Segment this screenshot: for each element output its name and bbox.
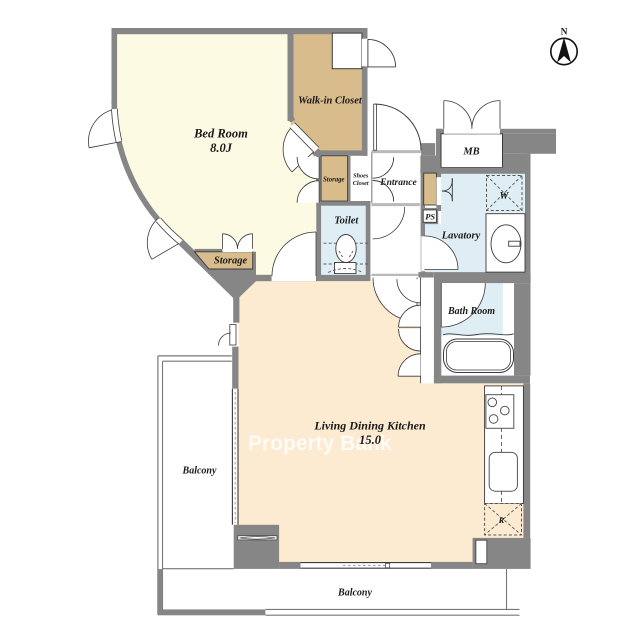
svg-text:Lavatory: Lavatory	[441, 231, 481, 242]
svg-text:Walk-in Closet: Walk-in Closet	[298, 96, 363, 107]
svg-text:Toilet: Toilet	[334, 216, 359, 227]
svg-text:R: R	[498, 515, 505, 525]
svg-text:Shoes: Shoes	[353, 173, 369, 180]
svg-text:MB: MB	[462, 147, 479, 158]
svg-text:Balcony: Balcony	[182, 466, 217, 477]
svg-text:Bed Room: Bed Room	[193, 127, 248, 141]
svg-text:N: N	[561, 28, 568, 38]
svg-text:W: W	[500, 191, 510, 202]
svg-text:Closet: Closet	[353, 180, 369, 187]
svg-text:Bath Room: Bath Room	[447, 306, 495, 317]
svg-text:Storage: Storage	[214, 256, 248, 267]
svg-text:8.0J: 8.0J	[210, 141, 233, 155]
svg-text:Balcony: Balcony	[337, 588, 372, 599]
svg-text:Storage: Storage	[323, 177, 345, 184]
svg-text:Entrance: Entrance	[379, 178, 417, 188]
svg-text:15.0: 15.0	[359, 433, 382, 447]
svg-text:Living Dining Kitchen: Living Dining Kitchen	[313, 419, 426, 433]
svg-text:PS: PS	[425, 212, 435, 222]
